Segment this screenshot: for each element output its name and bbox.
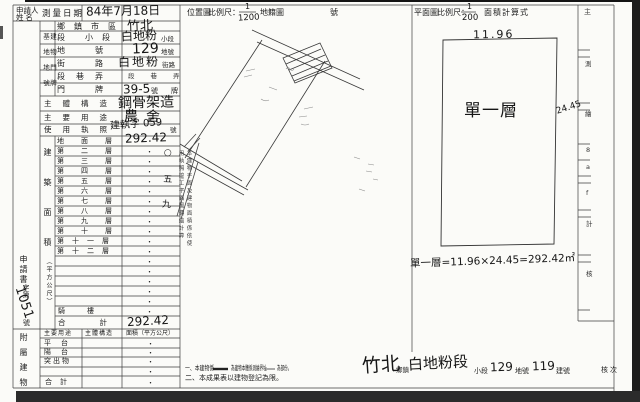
- floor-dot: ・: [146, 149, 153, 156]
- floor-10-label: 第十層: [57, 228, 129, 235]
- area-column-label: 建築面積: [43, 148, 51, 268]
- floor-dot: ・: [146, 239, 153, 246]
- floor-11-label: 第十一層: [57, 238, 117, 245]
- footer-lot-value: 129: [490, 361, 513, 374]
- group-label-building: 建物門牌: [48, 33, 55, 95]
- footer-lot-label: 地號: [515, 368, 529, 375]
- legend-line1-pre: 一、本建物係: [185, 366, 214, 373]
- house-number-label: 門牌: [57, 86, 133, 94]
- lot-suffix: 地號: [161, 50, 174, 57]
- sheet-no-label: 號: [330, 9, 338, 17]
- scan-edge-bottom: [16, 391, 640, 402]
- annex-column-label: 附屬建物: [19, 333, 27, 393]
- floor-5-label: 第五層: [57, 178, 129, 185]
- application-hao: 號: [23, 320, 30, 327]
- annex-header-area: 面積（平方公尺）: [126, 331, 174, 337]
- floor-dot: ・: [146, 159, 153, 166]
- township-label: 鄉鎮市區: [57, 23, 125, 31]
- footer-subsection-label: 小段: [474, 368, 488, 375]
- floor-dot: ・: [146, 249, 153, 256]
- strip-cell-check: 核: [586, 272, 593, 279]
- strip-mark-1: 8: [586, 147, 590, 154]
- annex-row-terrace: 平台: [44, 340, 78, 347]
- lane-label: 段巷弄: [57, 73, 114, 81]
- scan-nub-left: [0, 26, 3, 39]
- location-map-drawing: [180, 30, 364, 195]
- area-column-unit: （平方公尺）: [45, 258, 51, 306]
- footer-building-no-label: 建號: [556, 368, 570, 375]
- floor-2-label: 第二層: [57, 148, 129, 155]
- street-value: 白地粉: [118, 56, 160, 69]
- license-suffix: 號: [170, 128, 177, 135]
- scan-edge-top: [25, 0, 640, 2]
- annex-dot: ・: [147, 341, 154, 348]
- scanned-survey-form: 申請人 姓 名 測量日期 84年7月18日 位置圖 比例尺： 1 1200 地籍…: [0, 0, 640, 402]
- scale2-numerator: 1: [467, 3, 472, 11]
- strip-cell-survey: 測: [585, 62, 592, 69]
- annex-dot: ・: [147, 350, 154, 357]
- section-label: 段 小段: [57, 34, 119, 42]
- annex-row-projection: 突出物: [44, 358, 71, 365]
- strip-cell-draw: 繪: [585, 112, 592, 119]
- strip-top-label: 主: [584, 9, 591, 16]
- ground-floor-area: 292.42: [125, 131, 167, 144]
- margin-note-col2: 用執照竣工平面圖轉繪計算: [177, 150, 183, 240]
- footer-section-value: 白地粉段: [408, 354, 469, 372]
- margin-note-col1: 本建物平面及建物面積係依使: [185, 150, 191, 248]
- floor-9-label: 第九層: [57, 218, 129, 225]
- floor-7-label: 第七層: [57, 198, 129, 205]
- floor-dot: ・: [146, 209, 153, 216]
- floor-dot: ・: [146, 259, 153, 266]
- survey-date-value: 84年7月18日: [86, 4, 160, 17]
- cadastre-label: 地籍圖: [260, 9, 284, 17]
- annex-header-use: 主要用途: [44, 331, 72, 337]
- scale2-denominator: 200: [462, 14, 478, 23]
- floor-dot: ・: [146, 169, 153, 176]
- pencil-marks: [181, 68, 378, 224]
- annex-dot: ・: [147, 380, 154, 387]
- floor-plan-rectangle: [441, 38, 557, 246]
- annex-row-balcony: 陽台: [44, 349, 78, 356]
- qilou-label: 騎樓: [58, 308, 116, 315]
- footer-building-no-value: 119: [532, 360, 555, 373]
- area-calc-label: 面積計算式: [484, 9, 529, 17]
- annex-total-label: 合計: [45, 379, 75, 386]
- scale1-numerator: 1: [245, 3, 250, 11]
- street-suffix: 街路: [162, 63, 175, 70]
- floor-dot: ・: [146, 179, 153, 186]
- section-suffix: 小段: [161, 37, 174, 44]
- license-label: 使用執照: [44, 126, 118, 134]
- floor-dot: ・: [146, 229, 153, 236]
- legend-line1-post: 為部份。: [277, 366, 291, 373]
- legend-line2: 二、本成果表以建物登記為限。: [185, 375, 283, 382]
- floor-4-label: 第四層: [57, 168, 129, 175]
- floor-dot: ・: [146, 279, 153, 286]
- floor-12-label: 第十二層: [57, 248, 117, 255]
- footer-review-label: 核次: [601, 367, 619, 374]
- plan-floor-label: 單一層: [464, 103, 518, 120]
- structure-label: 主體構造: [44, 100, 118, 108]
- floor-dot: ・: [146, 269, 153, 276]
- group-label-parcel: 基地地號: [41, 33, 48, 95]
- floor-dot: ・: [146, 219, 153, 226]
- floor-dot: ・: [146, 299, 153, 306]
- applicant-label-2: 姓 名: [16, 14, 33, 22]
- floor-dot: ・: [146, 289, 153, 296]
- floor-dot: ・: [146, 199, 153, 206]
- floor-dot: ・: [146, 189, 153, 196]
- use-label: 主要用途: [44, 114, 118, 122]
- plan-title: 平面圖: [414, 9, 438, 17]
- strip-cell-calc: 計: [586, 222, 593, 229]
- annex-header-structure: 主體構造: [85, 331, 113, 337]
- floor-8-label: 第八層: [57, 208, 129, 215]
- strip-mark-3: f: [586, 190, 588, 197]
- lane-value-print: 段巷弄: [128, 74, 196, 81]
- annex-dot: ・: [147, 359, 154, 366]
- annex-dot: ・: [147, 369, 154, 376]
- ground-floor-label: 地面層: [57, 138, 129, 145]
- legend-line1-mid: 為建物本體係測繪界址: [231, 366, 267, 373]
- lot-label: 地號: [57, 47, 133, 55]
- footer-township-value: 竹北: [361, 355, 400, 377]
- strip-mark-2: a: [586, 164, 590, 171]
- total-area-value: 292.42: [127, 314, 170, 328]
- survey-date-label: 測量日期: [42, 9, 84, 18]
- house-number-value: 39-5: [123, 83, 151, 96]
- floor-6-label: 第六層: [57, 188, 129, 195]
- floor-3-label: 第三層: [57, 158, 129, 165]
- scan-edge-right: [632, 0, 640, 402]
- scale1-denominator: 1200: [238, 13, 260, 23]
- footer-township-label: 鄉鎮: [396, 368, 409, 375]
- scale1-label: 比例尺：: [208, 9, 240, 17]
- plan-width-dimension: 11.96: [473, 29, 515, 41]
